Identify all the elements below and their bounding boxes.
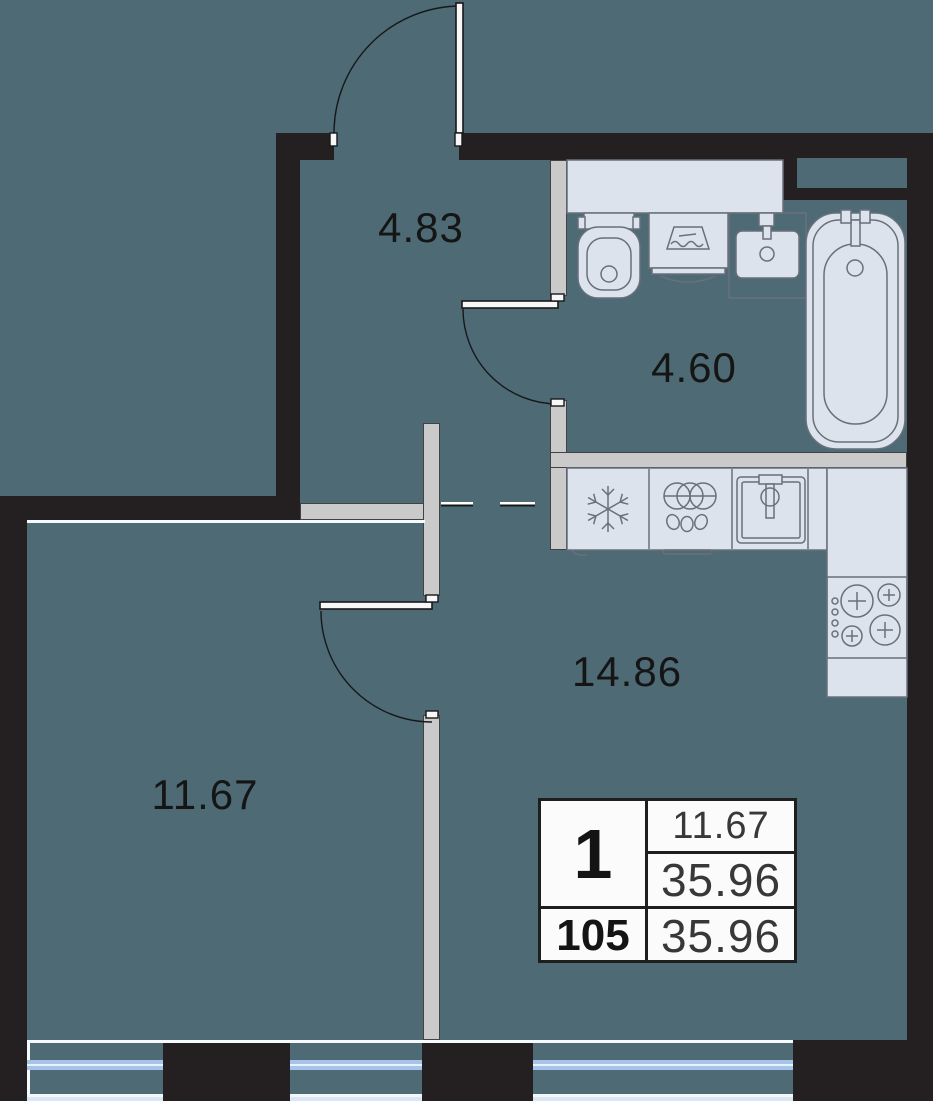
kitchen-living-area-label: 14.86 bbox=[572, 648, 682, 696]
total-area: 35.96 bbox=[648, 854, 794, 906]
bathtub bbox=[806, 210, 905, 449]
washing-machine bbox=[649, 213, 728, 282]
bathroom-shelf bbox=[567, 160, 783, 213]
opening-dashes bbox=[441, 502, 535, 507]
hallway-area-label: 4.83 bbox=[378, 204, 464, 252]
room-count: 1 bbox=[541, 801, 648, 906]
bedroom-door bbox=[320, 595, 438, 722]
bathroom-area-label: 4.60 bbox=[651, 344, 737, 392]
stove bbox=[827, 468, 907, 697]
living-area: 11.67 bbox=[648, 801, 794, 854]
toilet bbox=[578, 213, 640, 298]
apartment-area: 35.96 bbox=[648, 906, 794, 963]
bathroom-sink bbox=[729, 213, 806, 298]
bathroom-door bbox=[462, 294, 564, 406]
apartment-info-table: 1 11.67 35.96 105 35.96 bbox=[538, 798, 797, 963]
floor-plan: 4.83 4.60 14.86 11.67 1 11.67 35.96 105 … bbox=[0, 0, 933, 1101]
apartment-number: 105 bbox=[541, 906, 648, 963]
entrance-door bbox=[330, 3, 463, 146]
kitchen-sink bbox=[737, 475, 805, 543]
bedroom-area-label: 11.67 bbox=[152, 771, 259, 819]
